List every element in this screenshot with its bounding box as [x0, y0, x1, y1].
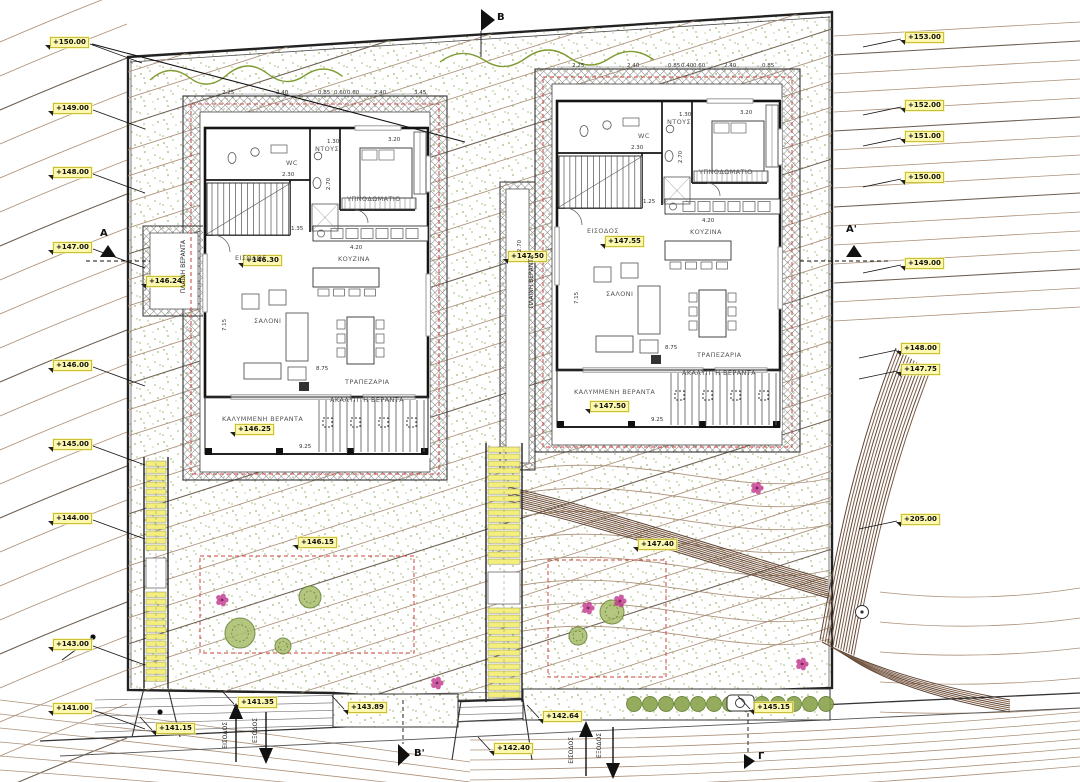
- house-right: [555, 67, 783, 431]
- house-left: [203, 94, 431, 458]
- site-plan-drawing: [0, 0, 1080, 782]
- site-plan-canvas: +150.00+149.00+148.00+147.00+146.00+145.…: [0, 0, 1080, 782]
